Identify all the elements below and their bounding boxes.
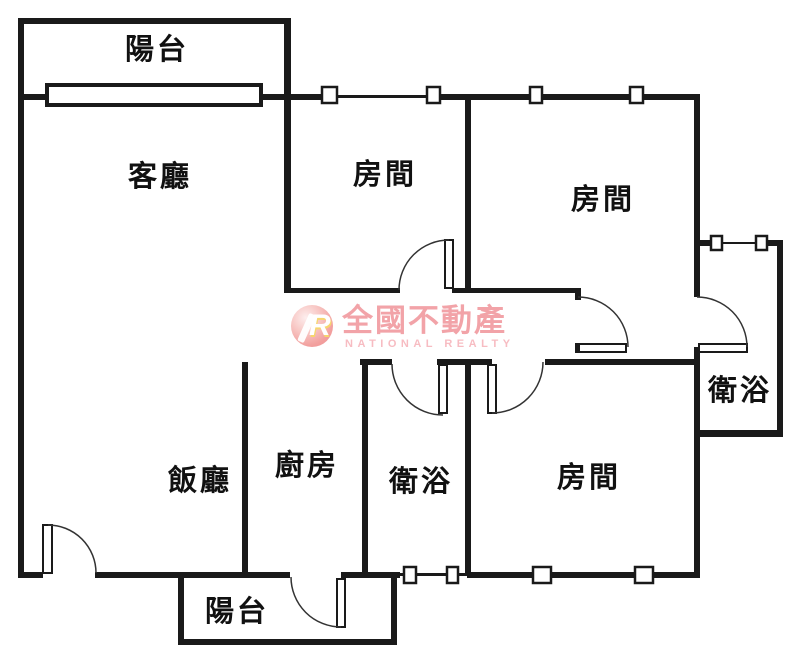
door-bath-middle-leaf — [439, 365, 447, 413]
room-label-bedroom-top: 房間 — [353, 161, 417, 190]
window-living-balcony — [47, 85, 261, 105]
door-bedroom-bottom-leaf — [488, 365, 496, 413]
door-balcony-leaf — [337, 579, 345, 627]
room-label-dining: 飯廳 — [168, 467, 232, 496]
room-label-living: 客廳 — [128, 163, 192, 192]
room-label-balcony-top: 陽台 — [125, 36, 189, 65]
room-label-bedroom-right: 房間 — [571, 186, 635, 215]
floor-plan: 陽台 客廳 房間 房間 衛浴 飯廳 廚房 衛浴 房間 陽台 R 全國不動產 NA… — [0, 0, 800, 658]
room-label-bath-right: 衛浴 — [708, 377, 772, 406]
room-label-bedroom-bottom: 房間 — [557, 464, 621, 493]
realty-logo-title: 全國不動產 — [342, 305, 507, 336]
room-label-kitchen: 廚房 — [275, 452, 339, 481]
realty-logo-letter: R — [309, 311, 331, 341]
realty-logo: R 全國不動產 NATIONAL REALTY — [290, 303, 520, 353]
door-bath-right-leaf — [699, 344, 747, 352]
door-entrance-leaf — [43, 525, 52, 573]
room-label-balcony-bottom: 陽台 — [205, 598, 269, 627]
realty-logo-sphere-icon: R — [291, 305, 333, 347]
door-bedroom-top-leaf — [445, 240, 453, 288]
realty-logo-subtitle: NATIONAL REALTY — [345, 339, 515, 350]
room-label-bath-middle: 衛浴 — [389, 468, 453, 497]
door-bedroom-right-leaf — [579, 344, 626, 352]
